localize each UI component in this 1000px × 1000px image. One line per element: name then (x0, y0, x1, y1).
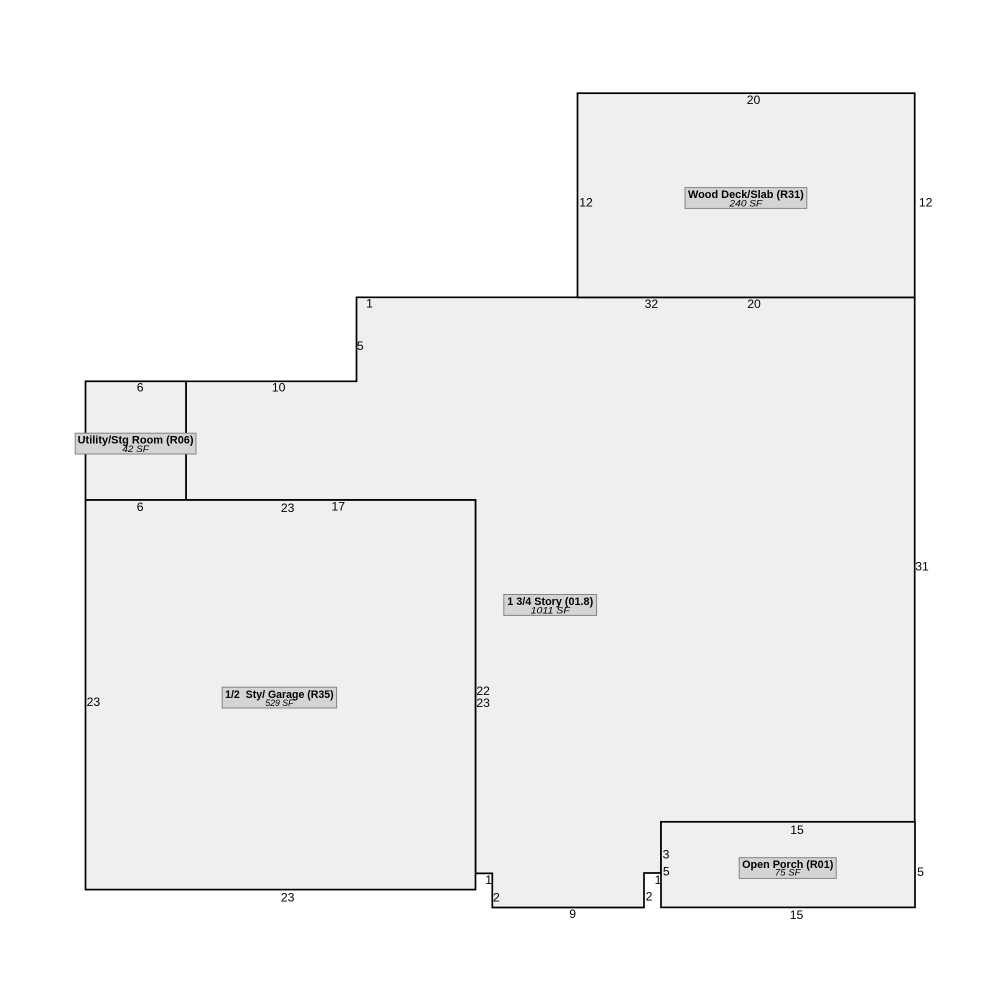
svg-text:2: 2 (646, 890, 653, 904)
svg-text:42 SF: 42 SF (122, 444, 149, 454)
svg-text:23: 23 (281, 501, 295, 515)
svg-text:5: 5 (663, 865, 670, 879)
svg-text:1011 SF: 1011 SF (531, 605, 571, 615)
svg-text:15: 15 (790, 908, 804, 922)
svg-text:240 SF: 240 SF (728, 198, 762, 208)
svg-text:1: 1 (485, 873, 492, 887)
svg-text:20: 20 (747, 93, 761, 107)
svg-text:10: 10 (272, 381, 286, 395)
svg-text:5: 5 (357, 339, 364, 353)
svg-text:529 SF: 529 SF (265, 698, 293, 708)
svg-text:23: 23 (87, 695, 101, 709)
svg-text:2: 2 (493, 890, 500, 904)
svg-text:15: 15 (790, 823, 804, 837)
svg-text:17: 17 (332, 500, 346, 514)
svg-text:23: 23 (281, 890, 295, 904)
svg-text:3: 3 (663, 847, 670, 861)
svg-text:20: 20 (747, 297, 761, 311)
svg-text:23: 23 (476, 696, 490, 710)
svg-text:9: 9 (569, 907, 576, 921)
svg-text:12: 12 (579, 196, 593, 210)
svg-text:1: 1 (366, 296, 373, 310)
svg-text:75 SF: 75 SF (775, 867, 801, 877)
svg-text:1: 1 (655, 873, 662, 887)
svg-text:32: 32 (645, 297, 659, 311)
svg-text:12: 12 (919, 196, 933, 210)
svg-text:5: 5 (917, 865, 924, 879)
svg-text:6: 6 (137, 500, 144, 514)
svg-text:31: 31 (915, 560, 929, 574)
svg-text:6: 6 (137, 381, 144, 395)
